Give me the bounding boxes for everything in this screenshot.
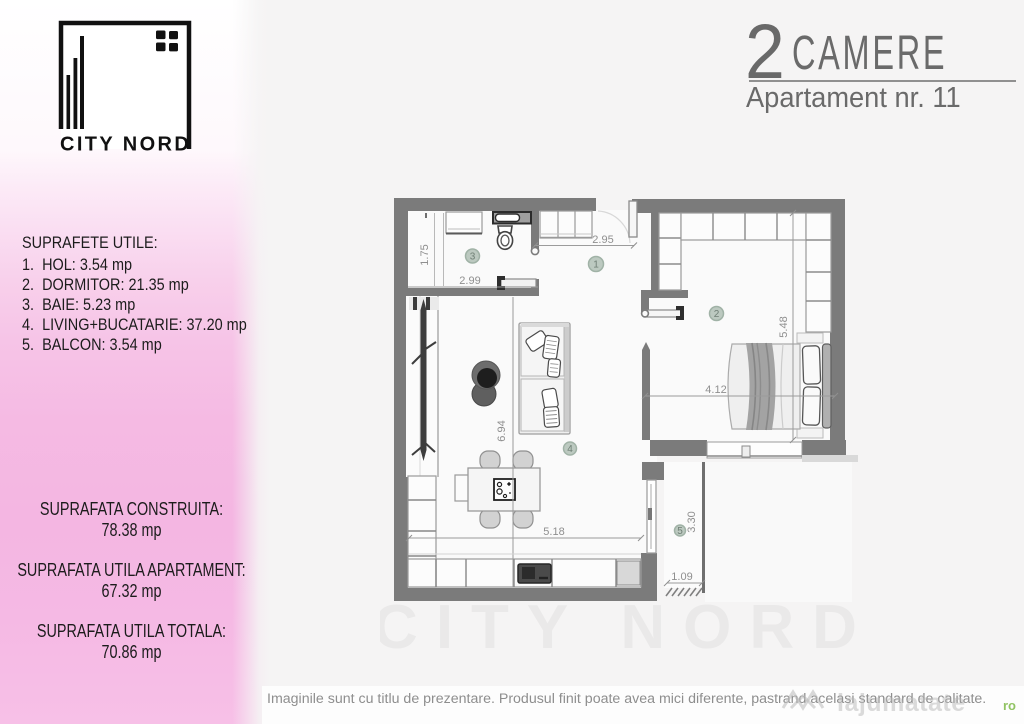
svg-text:5: 5 — [677, 526, 683, 537]
svg-text:4: 4 — [567, 444, 573, 455]
svg-text:lajumatate: lajumatate — [837, 689, 966, 717]
svg-text:5.48: 5.48 — [778, 316, 790, 337]
svg-text:6.94: 6.94 — [496, 420, 508, 441]
svg-text:CITY NORD: CITY NORD — [380, 593, 875, 662]
svg-text:4.12: 4.12 — [705, 384, 726, 396]
svg-text:1: 1 — [593, 260, 599, 271]
svg-text:1.75: 1.75 — [419, 244, 431, 265]
svg-text:2.95: 2.95 — [592, 234, 613, 246]
svg-text:1.09: 1.09 — [671, 571, 692, 583]
svg-text:3.30: 3.30 — [686, 511, 698, 532]
svg-text:ro: ro — [1003, 698, 1016, 713]
svg-text:2: 2 — [714, 309, 720, 320]
svg-text:3: 3 — [470, 252, 476, 263]
svg-text:5.18: 5.18 — [543, 526, 564, 538]
svg-text:CITY NORD: CITY NORD — [60, 134, 191, 156]
svg-text:2.99: 2.99 — [459, 275, 480, 287]
